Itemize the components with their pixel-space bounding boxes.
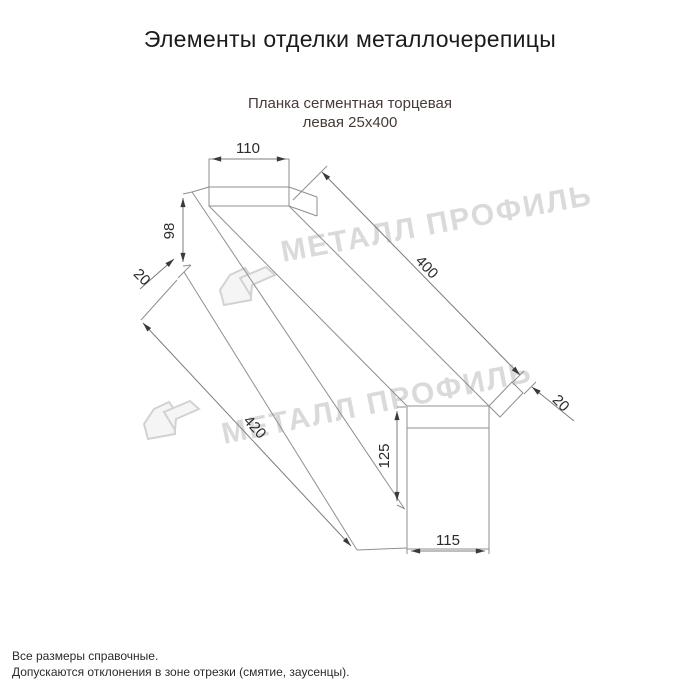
metall-profil-logo-icon [144,401,199,439]
dim-label-left-hem: 20 [130,265,154,289]
dim-label-top-width: 110 [236,140,260,157]
technical-drawing: МЕТАЛЛ ПРОФИЛЬ МЕТАЛЛ ПРОФИЛЬ [0,0,700,700]
watermark-text: МЕТАЛЛ ПРОФИЛЬ [278,179,595,269]
dim-label-right-hem: 20 [549,391,573,415]
dim-label-right-height: 125 [376,443,393,468]
footnote-line-1: Все размеры справочные. [12,648,349,664]
footnote-line-2: Допускаются отклонения в зоне отрезки (с… [12,664,349,680]
watermark-text: МЕТАЛЛ ПРОФИЛЬ [219,355,535,450]
watermark-top: МЕТАЛЛ ПРОФИЛЬ [220,179,595,305]
dim-label-length-upper: 400 [412,252,442,282]
dim-label-bottom-width: 115 [436,532,460,549]
metall-profil-logo-icon [220,267,275,305]
page: { "page": { "title": "Элементы отделки м… [0,0,700,700]
watermark-bottom: МЕТАЛЛ ПРОФИЛЬ [144,355,535,450]
dim-label-left-height: 98 [161,223,178,240]
footnotes: Все размеры справочные. Допускаются откл… [12,648,349,680]
